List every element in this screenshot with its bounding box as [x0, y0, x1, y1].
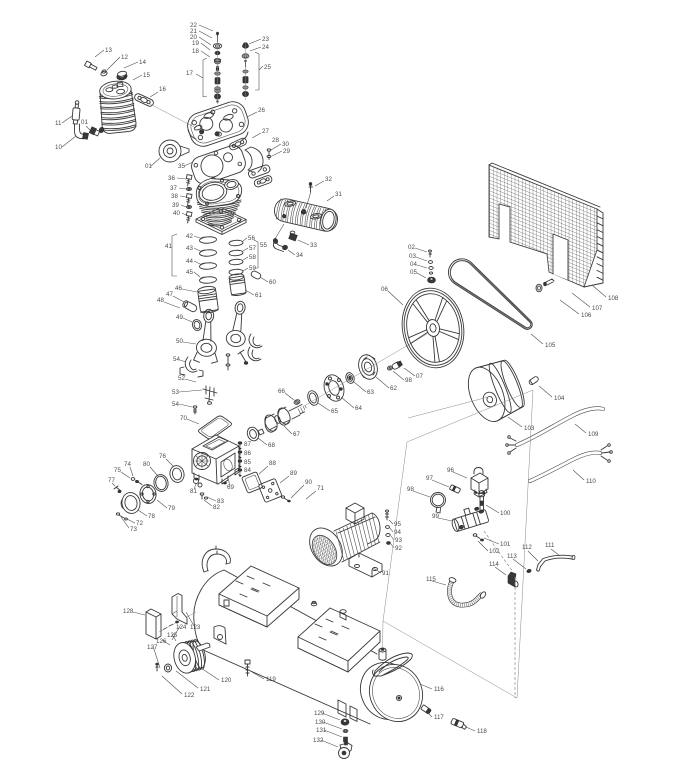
svg-text:98: 98 — [405, 377, 412, 384]
svg-text:54: 54 — [172, 401, 179, 408]
svg-text:90: 90 — [305, 479, 312, 486]
svg-text:109: 109 — [588, 431, 599, 438]
svg-text:112: 112 — [522, 544, 532, 551]
svg-text:105: 105 — [545, 342, 556, 349]
svg-text:104: 104 — [554, 395, 565, 402]
svg-text:107: 107 — [592, 305, 603, 312]
svg-text:101: 101 — [500, 541, 511, 548]
svg-text:75: 75 — [114, 467, 121, 474]
svg-text:06: 06 — [381, 286, 388, 293]
svg-text:50: 50 — [176, 338, 183, 345]
svg-text:33: 33 — [310, 242, 317, 249]
svg-text:117: 117 — [434, 714, 444, 721]
svg-text:55: 55 — [260, 242, 267, 249]
svg-text:81: 81 — [190, 488, 197, 495]
svg-text:18: 18 — [192, 48, 199, 55]
svg-text:34: 34 — [296, 252, 303, 259]
svg-text:66: 66 — [278, 388, 285, 395]
svg-text:64: 64 — [355, 405, 362, 412]
svg-text:30: 30 — [282, 141, 289, 148]
svg-text:99: 99 — [432, 513, 439, 520]
svg-text:72: 72 — [136, 520, 143, 527]
svg-text:52: 52 — [178, 375, 185, 382]
svg-text:103: 103 — [524, 425, 535, 432]
svg-text:44: 44 — [186, 258, 193, 265]
svg-text:123: 123 — [190, 624, 201, 631]
svg-text:113: 113 — [507, 553, 517, 560]
svg-text:25: 25 — [264, 64, 271, 71]
svg-text:26: 26 — [258, 107, 265, 114]
svg-text:71: 71 — [317, 485, 324, 492]
svg-text:47: 47 — [166, 291, 173, 298]
svg-text:60: 60 — [269, 279, 276, 286]
svg-text:86: 86 — [244, 450, 251, 457]
svg-text:76: 76 — [159, 453, 166, 460]
svg-text:16: 16 — [159, 86, 166, 93]
svg-text:24: 24 — [262, 44, 269, 51]
svg-text:14: 14 — [139, 59, 146, 66]
svg-text:13: 13 — [105, 47, 112, 54]
svg-text:73: 73 — [130, 526, 137, 533]
svg-text:39: 39 — [172, 202, 179, 209]
svg-text:85: 85 — [244, 459, 251, 466]
svg-text:84: 84 — [244, 467, 251, 474]
svg-text:91: 91 — [382, 570, 389, 577]
svg-text:106: 106 — [581, 312, 592, 319]
svg-text:110: 110 — [586, 478, 596, 485]
svg-text:42: 42 — [186, 233, 193, 240]
svg-text:56: 56 — [248, 235, 255, 242]
svg-text:29: 29 — [283, 148, 290, 155]
svg-text:02: 02 — [408, 244, 415, 251]
svg-text:92: 92 — [395, 545, 402, 552]
svg-text:05: 05 — [410, 269, 417, 276]
svg-text:49: 49 — [176, 314, 183, 321]
svg-text:121: 121 — [200, 686, 211, 693]
svg-text:95: 95 — [394, 521, 401, 528]
svg-text:127: 127 — [147, 644, 158, 651]
svg-text:78: 78 — [148, 513, 155, 520]
svg-text:35: 35 — [178, 163, 185, 170]
svg-text:116: 116 — [434, 686, 444, 693]
svg-text:36: 36 — [168, 175, 175, 182]
svg-text:10: 10 — [55, 144, 62, 151]
svg-text:01: 01 — [81, 119, 88, 126]
svg-text:82: 82 — [213, 504, 220, 511]
svg-text:03: 03 — [409, 253, 416, 260]
svg-text:120: 120 — [221, 677, 232, 684]
svg-text:62: 62 — [390, 385, 397, 392]
svg-text:53: 53 — [172, 389, 179, 396]
svg-text:102: 102 — [489, 548, 500, 555]
svg-text:87: 87 — [244, 441, 251, 448]
svg-text:118: 118 — [477, 728, 487, 735]
svg-text:57: 57 — [249, 245, 256, 252]
svg-text:32: 32 — [325, 176, 332, 183]
svg-text:98: 98 — [407, 486, 414, 493]
svg-text:119: 119 — [266, 676, 276, 683]
svg-text:31: 31 — [335, 191, 342, 198]
svg-text:108: 108 — [608, 295, 619, 302]
svg-text:80: 80 — [143, 461, 150, 468]
svg-text:61: 61 — [255, 292, 262, 299]
svg-text:68: 68 — [268, 442, 275, 449]
svg-text:19: 19 — [192, 40, 199, 47]
svg-text:97: 97 — [426, 475, 433, 482]
svg-text:128: 128 — [123, 608, 134, 615]
svg-text:74: 74 — [124, 461, 131, 468]
svg-text:46: 46 — [175, 285, 182, 292]
svg-text:15: 15 — [143, 72, 150, 79]
svg-text:111: 111 — [545, 542, 555, 549]
svg-text:01: 01 — [145, 163, 152, 170]
svg-text:48: 48 — [157, 297, 164, 304]
svg-text:65: 65 — [331, 408, 338, 415]
svg-text:89: 89 — [290, 470, 297, 477]
svg-text:43: 43 — [186, 245, 193, 252]
svg-text:114: 114 — [489, 561, 499, 568]
svg-text:77: 77 — [108, 477, 115, 484]
svg-text:122: 122 — [184, 692, 195, 699]
svg-text:11: 11 — [55, 120, 62, 127]
svg-text:04: 04 — [410, 261, 417, 268]
svg-text:67: 67 — [293, 431, 300, 438]
svg-text:38: 38 — [171, 193, 178, 200]
svg-text:88: 88 — [269, 460, 276, 467]
svg-text:12: 12 — [121, 54, 128, 61]
svg-text:100: 100 — [500, 510, 511, 517]
svg-text:23: 23 — [262, 36, 269, 43]
svg-text:79: 79 — [168, 505, 175, 512]
svg-text:70: 70 — [180, 415, 187, 422]
svg-text:126: 126 — [156, 638, 167, 645]
svg-text:07: 07 — [416, 373, 423, 380]
svg-text:54: 54 — [173, 356, 180, 363]
svg-text:93: 93 — [395, 537, 402, 544]
svg-text:40: 40 — [173, 210, 180, 217]
svg-text:63: 63 — [367, 389, 374, 396]
svg-text:17: 17 — [186, 70, 193, 77]
svg-text:37: 37 — [170, 185, 177, 192]
svg-text:27: 27 — [262, 128, 269, 135]
svg-text:58: 58 — [249, 254, 256, 261]
svg-text:96: 96 — [447, 467, 454, 474]
svg-text:28: 28 — [272, 137, 279, 144]
svg-text:69: 69 — [227, 484, 234, 491]
svg-text:45: 45 — [186, 269, 193, 276]
svg-text:41: 41 — [165, 243, 172, 250]
